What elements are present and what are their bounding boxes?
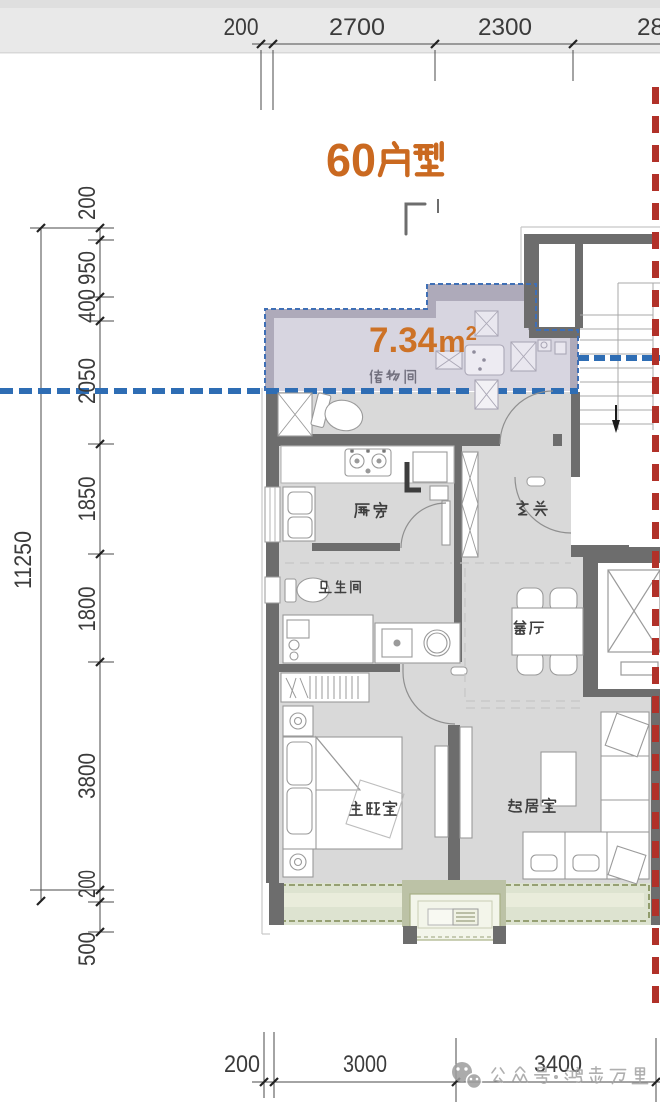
svg-text:1800: 1800 <box>74 587 101 632</box>
svg-text:2800: 2800 <box>637 14 660 41</box>
svg-text:950: 950 <box>74 251 101 285</box>
svg-text:11250: 11250 <box>10 531 37 589</box>
svg-text:7.34m2: 7.34m2 <box>369 321 477 360</box>
svg-text:60: 60 <box>326 134 376 186</box>
svg-text:400: 400 <box>74 289 101 323</box>
svg-text:2050: 2050 <box>74 358 101 404</box>
svg-text:200: 200 <box>224 14 259 41</box>
svg-text:3800: 3800 <box>74 753 101 799</box>
svg-text:200: 200 <box>224 1051 260 1078</box>
svg-text:1850: 1850 <box>74 477 101 522</box>
svg-text:200: 200 <box>74 870 101 898</box>
svg-text:2700: 2700 <box>329 14 385 41</box>
svg-text:3000: 3000 <box>343 1051 387 1078</box>
svg-text:500: 500 <box>74 932 101 966</box>
svg-text:200: 200 <box>74 186 101 220</box>
svg-text:3400: 3400 <box>534 1051 582 1078</box>
svg-text:2300: 2300 <box>478 14 532 41</box>
